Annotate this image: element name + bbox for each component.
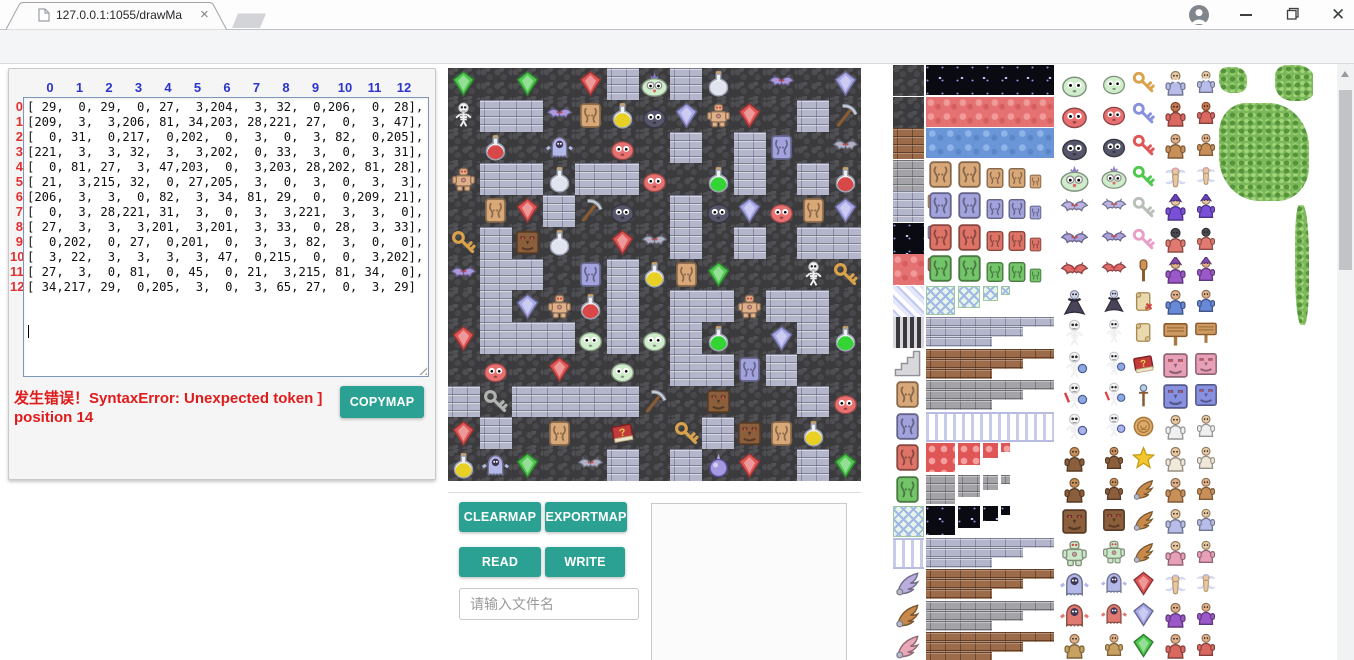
tile-map-canvas[interactable]: ? xyxy=(448,68,861,481)
map-tile-81[interactable] xyxy=(543,417,575,449)
map-tile-28[interactable] xyxy=(670,100,702,132)
map-tile-209[interactable] xyxy=(797,259,829,291)
tileset-monster-ghost[interactable] xyxy=(1101,601,1129,629)
map-tile-31[interactable] xyxy=(829,163,861,195)
map-tile-0[interactable] xyxy=(734,322,766,354)
map-tile-0[interactable] xyxy=(766,100,798,132)
map-tile-81[interactable] xyxy=(797,195,829,227)
tileset-item-key[interactable] xyxy=(1131,133,1157,159)
tileset-char-person[interactable] xyxy=(1161,257,1191,287)
tileset-char-person[interactable] xyxy=(1193,194,1220,221)
map-tile-29[interactable] xyxy=(829,449,861,481)
tileset-char-person[interactable] xyxy=(1193,476,1220,503)
tileset-tree[interactable] xyxy=(1275,65,1313,101)
map-tile-3[interactable] xyxy=(575,386,607,418)
tileset-char-person[interactable] xyxy=(1193,288,1220,315)
tileset-item-medal[interactable] xyxy=(1131,414,1157,440)
tileset-steps-row[interactable] xyxy=(926,632,1056,660)
map-tile-3[interactable] xyxy=(702,290,734,322)
map-tile-3[interactable] xyxy=(480,322,512,354)
map-tile-3[interactable] xyxy=(766,354,798,386)
map-tile-221[interactable] xyxy=(734,290,766,322)
map-tile-202[interactable] xyxy=(607,132,639,164)
map-tile-204[interactable] xyxy=(639,68,671,100)
map-tile-3[interactable] xyxy=(797,322,829,354)
map-tile-3[interactable] xyxy=(607,163,639,195)
map-tile-215[interactable] xyxy=(734,417,766,449)
map-tile-82[interactable] xyxy=(766,132,798,164)
map-tile-3[interactable] xyxy=(512,386,544,418)
map-tile-201[interactable] xyxy=(575,322,607,354)
tileset-wing[interactable] xyxy=(893,569,924,600)
map-tile-47[interactable] xyxy=(829,100,861,132)
tileset-monster-bat[interactable] xyxy=(1060,226,1090,256)
scrollbar-thumb[interactable] xyxy=(1339,90,1352,270)
map-tile-3[interactable] xyxy=(575,163,607,195)
tileset-monster-slime[interactable] xyxy=(1101,132,1129,160)
map-tile-0[interactable] xyxy=(829,417,861,449)
tileset-wing[interactable] xyxy=(893,601,924,632)
tileset-char-fairy[interactable] xyxy=(1193,570,1220,597)
map-tile-0[interactable] xyxy=(639,417,671,449)
tileset-texture-bar[interactable] xyxy=(926,128,1054,158)
map-tile-0[interactable] xyxy=(448,195,480,227)
tileset-item-gem[interactable] xyxy=(1131,602,1157,628)
map-tile-47[interactable] xyxy=(575,195,607,227)
map-tile-0[interactable] xyxy=(448,354,480,386)
map-tile-201[interactable] xyxy=(607,354,639,386)
map-tile-3[interactable] xyxy=(670,290,702,322)
map-tile-3[interactable] xyxy=(670,322,702,354)
tileset-door-row[interactable] xyxy=(926,191,1056,222)
map-tile-0[interactable] xyxy=(734,386,766,418)
map-tile-29[interactable] xyxy=(702,259,734,291)
map-tile-221[interactable] xyxy=(702,100,734,132)
tileset-palette[interactable]: ? xyxy=(893,65,1313,660)
map-tile-27[interactable] xyxy=(734,449,766,481)
map-tile-29[interactable] xyxy=(512,449,544,481)
map-tile-27[interactable] xyxy=(607,227,639,259)
map-tile-0[interactable] xyxy=(766,259,798,291)
tileset-item-book[interactable]: ? xyxy=(1131,352,1157,378)
map-tile-3[interactable] xyxy=(480,100,512,132)
map-tile-202[interactable] xyxy=(766,195,798,227)
map-tile-3[interactable] xyxy=(670,449,702,481)
map-tile-28[interactable] xyxy=(766,322,798,354)
map-tile-3[interactable] xyxy=(670,68,702,100)
tileset-char-faceblock[interactable] xyxy=(1161,351,1191,381)
tileset-monster-slime[interactable] xyxy=(1060,132,1090,162)
read-button[interactable]: READ xyxy=(459,547,541,577)
map-tile-34[interactable] xyxy=(797,417,829,449)
tileset-char-sign[interactable] xyxy=(1193,319,1220,346)
map-tile-3[interactable] xyxy=(607,322,639,354)
map-tile-0[interactable] xyxy=(670,386,702,418)
map-tile-0[interactable] xyxy=(512,132,544,164)
map-tile-3[interactable] xyxy=(512,163,544,195)
map-tile-215[interactable] xyxy=(702,386,734,418)
tileset-terrain-rock-gray[interactable] xyxy=(893,160,924,191)
tileset-tree[interactable] xyxy=(1295,205,1309,325)
map-tile-31[interactable] xyxy=(480,132,512,164)
map-tile-3[interactable] xyxy=(734,163,766,195)
map-tile-3[interactable] xyxy=(480,290,512,322)
map-tile-0[interactable] xyxy=(702,227,734,259)
tileset-monster-vampire[interactable] xyxy=(1101,288,1129,316)
tileset-char-fairy[interactable] xyxy=(1161,570,1191,600)
tileset-monster-skeleton[interactable] xyxy=(1101,351,1129,379)
tileset-monster-faceblock[interactable] xyxy=(1101,507,1129,535)
tileset-door-row[interactable] xyxy=(926,223,1056,254)
map-tile-33[interactable] xyxy=(702,163,734,195)
map-tile-32[interactable] xyxy=(543,227,575,259)
tileset-terrain-starfield[interactable] xyxy=(893,223,924,254)
tileset-monster-skeleton[interactable] xyxy=(1060,413,1090,443)
tileset-monster-bat[interactable] xyxy=(1060,194,1090,224)
tileset-char-faceblock[interactable] xyxy=(1161,382,1191,412)
tileset-monster-slime[interactable] xyxy=(1101,100,1129,128)
tileset-tree[interactable] xyxy=(1219,103,1309,201)
tileset-monster-skeleton[interactable] xyxy=(1101,413,1129,441)
map-tile-27[interactable] xyxy=(575,68,607,100)
tileset-steps-row[interactable] xyxy=(926,601,1056,632)
map-tile-203[interactable] xyxy=(607,195,639,227)
tileset-shrink-row[interactable] xyxy=(926,506,1056,537)
tileset-char-person[interactable] xyxy=(1161,507,1191,537)
copymap-button[interactable]: COPYMAP xyxy=(340,386,424,418)
map-tile-3[interactable] xyxy=(797,290,829,322)
tileset-monster-bat[interactable] xyxy=(1060,257,1090,287)
tileset-monster-person[interactable] xyxy=(1060,632,1090,660)
map-tile-3[interactable] xyxy=(766,290,798,322)
tileset-monster-ghost[interactable] xyxy=(1101,570,1129,598)
tileset-char-person[interactable] xyxy=(1193,132,1220,159)
map-tile-0[interactable] xyxy=(797,354,829,386)
map-tile-0[interactable] xyxy=(639,290,671,322)
map-tile-3[interactable] xyxy=(543,195,575,227)
map-tile-3[interactable] xyxy=(702,354,734,386)
tileset-monster-skeleton[interactable] xyxy=(1101,319,1129,347)
map-tile-0[interactable] xyxy=(575,132,607,164)
tileset-item-key[interactable] xyxy=(1131,195,1157,221)
map-tile-47[interactable] xyxy=(639,386,671,418)
tileset-char-person[interactable] xyxy=(1193,601,1220,628)
map-tile-34[interactable] xyxy=(639,259,671,291)
map-tile-28[interactable] xyxy=(512,290,544,322)
map-tile-0[interactable] xyxy=(766,386,798,418)
map-tile-0[interactable] xyxy=(639,354,671,386)
tileset-monster-person[interactable] xyxy=(1101,476,1129,504)
map-tile-3[interactable] xyxy=(670,195,702,227)
tileset-texture-bar[interactable] xyxy=(926,65,1054,95)
tileset-char-person[interactable] xyxy=(1193,257,1220,284)
tileset-terrain-cobble-dark[interactable] xyxy=(893,65,924,96)
map-tile-3[interactable] xyxy=(480,163,512,195)
map-tile-3[interactable] xyxy=(607,259,639,291)
map-tile-3[interactable] xyxy=(670,354,702,386)
map-tile-3[interactable] xyxy=(702,417,734,449)
map-tile-205[interactable] xyxy=(829,132,861,164)
map-tile-3[interactable] xyxy=(480,227,512,259)
tileset-steps-row[interactable] xyxy=(926,538,1056,569)
window-close-button[interactable]: ✕ xyxy=(1331,6,1345,23)
tileset-char-person[interactable] xyxy=(1193,69,1220,96)
map-tile-3[interactable] xyxy=(512,100,544,132)
tileset-monster-faceblock[interactable] xyxy=(1060,507,1090,537)
tileset-char-person[interactable] xyxy=(1161,476,1191,506)
map-tile-0[interactable] xyxy=(797,132,829,164)
tileset-char-person[interactable] xyxy=(1161,194,1191,224)
map-tile-81[interactable] xyxy=(480,195,512,227)
tileset-door-row[interactable] xyxy=(926,160,1056,191)
map-tile-3[interactable] xyxy=(607,386,639,418)
map-tile-221[interactable] xyxy=(543,290,575,322)
map-tile-206[interactable] xyxy=(448,259,480,291)
tileset-steps-row[interactable] xyxy=(926,317,1056,348)
tileset-monster-bigslime[interactable] xyxy=(1060,163,1090,193)
map-tile-3[interactable] xyxy=(607,68,639,100)
map-tile-27[interactable] xyxy=(448,322,480,354)
map-tile-3[interactable] xyxy=(670,227,702,259)
map-tile-0[interactable] xyxy=(575,417,607,449)
map-tile-31[interactable] xyxy=(575,290,607,322)
tileset-terrain-cobble-dark[interactable] xyxy=(893,97,924,128)
tileset-monster-person[interactable] xyxy=(1060,445,1090,475)
map-tile-0[interactable] xyxy=(829,290,861,322)
tileset-monster-skeleton[interactable] xyxy=(1060,382,1090,412)
map-tile-81[interactable] xyxy=(575,100,607,132)
map-tile-0[interactable] xyxy=(543,449,575,481)
tileset-monster-skeleton[interactable] xyxy=(1101,382,1129,410)
tileset-shrink-row[interactable] xyxy=(926,286,1056,317)
tileset-char-person[interactable] xyxy=(1161,632,1191,660)
tileset-char-fairy[interactable] xyxy=(1193,163,1220,190)
map-tile-28[interactable] xyxy=(829,68,861,100)
tileset-char-faceblock[interactable] xyxy=(1193,382,1220,409)
tileset-door[interactable] xyxy=(893,475,924,506)
tileset-terrain-brick-brown[interactable] xyxy=(893,128,924,159)
map-tile-203[interactable] xyxy=(639,100,671,132)
map-tile-28[interactable] xyxy=(829,195,861,227)
map-tile-3[interactable] xyxy=(797,227,829,259)
map-tile-221[interactable] xyxy=(448,163,480,195)
map-tile-3[interactable] xyxy=(543,322,575,354)
map-tile-3[interactable] xyxy=(512,259,544,291)
tileset-item-key[interactable] xyxy=(1131,70,1157,96)
tileset-door[interactable] xyxy=(893,380,924,411)
map-tile-209[interactable] xyxy=(448,100,480,132)
tileset-char-person[interactable] xyxy=(1193,539,1220,566)
tileset-char-faceblock[interactable] xyxy=(1193,351,1220,378)
map-tile-0[interactable] xyxy=(734,259,766,291)
tileset-monster-skeleton[interactable] xyxy=(1060,319,1090,349)
tileset-tree[interactable] xyxy=(1219,67,1247,93)
tileset-char-person[interactable] xyxy=(1161,226,1191,256)
scrollbar-up-arrow-icon[interactable] xyxy=(1341,71,1349,77)
tileset-item-wing[interactable] xyxy=(1131,540,1157,566)
tileset-monster-person[interactable] xyxy=(1101,445,1129,473)
tileset-monster-bat[interactable] xyxy=(1101,257,1129,285)
map-tile-0[interactable] xyxy=(543,68,575,100)
tileset-char-person[interactable] xyxy=(1193,632,1220,659)
tileset-door[interactable] xyxy=(893,443,924,474)
map-tile-3[interactable] xyxy=(543,386,575,418)
map-tile-215[interactable] xyxy=(512,227,544,259)
tileset-monster-golem[interactable] xyxy=(1060,539,1090,569)
map-tile-21[interactable] xyxy=(670,417,702,449)
textarea-resize-grip[interactable] xyxy=(417,365,427,375)
map-tile-82[interactable] xyxy=(575,259,607,291)
tileset-item-wing[interactable] xyxy=(1131,508,1157,534)
tileset-terrain-cobble-blue[interactable] xyxy=(893,191,924,222)
tileset-terrain-terrain-red[interactable] xyxy=(893,254,924,285)
map-tile-28[interactable] xyxy=(734,195,766,227)
map-tile-3[interactable] xyxy=(734,227,766,259)
tileset-monster-golem[interactable] xyxy=(1101,539,1129,567)
tileset-char-person[interactable] xyxy=(1193,226,1220,253)
map-tile-0[interactable] xyxy=(829,354,861,386)
map-tile-3[interactable] xyxy=(797,386,829,418)
tileset-char-person[interactable] xyxy=(1161,601,1191,631)
map-tile-0[interactable] xyxy=(766,449,798,481)
map-tile-33[interactable] xyxy=(702,322,734,354)
map-tile-0[interactable] xyxy=(670,163,702,195)
map-tile-206[interactable] xyxy=(543,100,575,132)
exportmap-button[interactable]: EXPORTMAP xyxy=(545,502,627,532)
map-tile-0[interactable] xyxy=(480,68,512,100)
tileset-monster-ghost[interactable] xyxy=(1060,570,1090,600)
map-tile-32[interactable] xyxy=(702,68,734,100)
tileset-steps-row[interactable] xyxy=(926,569,1056,600)
tileset-char-person[interactable] xyxy=(1193,100,1220,127)
tileset-item-wing[interactable] xyxy=(1131,477,1157,503)
map-tile-0[interactable] xyxy=(448,132,480,164)
map-tile-33[interactable] xyxy=(829,322,861,354)
tileset-item-key[interactable] xyxy=(1131,164,1157,190)
map-tile-81[interactable] xyxy=(766,417,798,449)
tileset-monster-slime[interactable] xyxy=(1060,69,1090,99)
tileset-wing[interactable] xyxy=(893,632,924,660)
write-button[interactable]: WRITE xyxy=(545,547,625,577)
tileset-item-club[interactable] xyxy=(1131,258,1157,284)
tileset-terrain-lattice[interactable] xyxy=(893,506,924,537)
map-tile-34[interactable] xyxy=(607,100,639,132)
map-tile-27[interactable] xyxy=(734,100,766,132)
map-tile-0[interactable] xyxy=(575,354,607,386)
tileset-monster-person[interactable] xyxy=(1060,476,1090,506)
tileset-char-person[interactable] xyxy=(1161,132,1191,162)
tileset-door[interactable] xyxy=(893,412,924,443)
map-tile-3[interactable] xyxy=(734,132,766,164)
tileset-char-person[interactable] xyxy=(1161,445,1191,475)
tileset-char-person[interactable] xyxy=(1193,507,1220,534)
tileset-monster-bat[interactable] xyxy=(1101,194,1129,222)
map-tile-0[interactable] xyxy=(797,68,829,100)
tab-close-icon[interactable]: × xyxy=(200,6,209,23)
map-tile-202[interactable] xyxy=(829,386,861,418)
tileset-shrink-row[interactable] xyxy=(926,475,1056,506)
tileset-item-gem[interactable] xyxy=(1131,633,1157,659)
map-tile-217[interactable] xyxy=(480,449,512,481)
map-tile-3[interactable] xyxy=(670,132,702,164)
tileset-terrain-stripe[interactable] xyxy=(893,286,924,317)
tileset-monster-ghost[interactable] xyxy=(1060,601,1090,631)
tileset-char-person[interactable] xyxy=(1161,539,1191,569)
map-tile-27[interactable] xyxy=(448,417,480,449)
tileset-shrink-row[interactable] xyxy=(926,443,1056,474)
tileset-item-gem[interactable] xyxy=(1131,571,1157,597)
map-tile-65[interactable] xyxy=(702,449,734,481)
tileset-item-scroll[interactable] xyxy=(1131,289,1157,315)
filename-input[interactable] xyxy=(459,588,639,620)
tileset-char-fairy[interactable] xyxy=(1161,163,1191,193)
map-tile-82[interactable] xyxy=(734,354,766,386)
map-tile-3[interactable] xyxy=(797,163,829,195)
tileset-monster-bat[interactable] xyxy=(1101,226,1129,254)
map-tile-3[interactable] xyxy=(829,227,861,259)
map-tile-27[interactable] xyxy=(512,195,544,227)
map-tile-0[interactable] xyxy=(543,259,575,291)
map-tile-0[interactable] xyxy=(734,68,766,100)
tileset-monster-skeleton[interactable] xyxy=(1060,351,1090,381)
map-tile-3[interactable] xyxy=(797,449,829,481)
map-tile-45[interactable]: ? xyxy=(607,417,639,449)
map-tile-0[interactable] xyxy=(766,163,798,195)
map-tile-21[interactable] xyxy=(829,259,861,291)
map-tile-3[interactable] xyxy=(448,386,480,418)
map-tile-202[interactable] xyxy=(480,354,512,386)
tileset-terrain-columns[interactable] xyxy=(893,538,924,569)
tileset-monster-person[interactable] xyxy=(1101,632,1129,660)
map-tile-0[interactable] xyxy=(702,132,734,164)
map-tile-0[interactable] xyxy=(512,354,544,386)
tileset-steps-row[interactable] xyxy=(926,349,1056,380)
map-tile-203[interactable] xyxy=(702,195,734,227)
tileset-monster-slime[interactable] xyxy=(1101,69,1129,97)
map-tile-32[interactable] xyxy=(543,163,575,195)
map-tile-34[interactable] xyxy=(448,449,480,481)
tileset-monster-bigslime[interactable] xyxy=(1101,163,1129,191)
window-restore-button[interactable] xyxy=(1286,7,1300,26)
map-tile-21[interactable] xyxy=(448,227,480,259)
map-tile-0[interactable] xyxy=(575,227,607,259)
tileset-char-person[interactable] xyxy=(1193,445,1220,472)
map-tile-0[interactable] xyxy=(766,227,798,259)
map-tile-29[interactable] xyxy=(512,68,544,100)
tileset-char-person[interactable] xyxy=(1161,69,1191,99)
tileset-texture-bar[interactable] xyxy=(926,97,1054,127)
tileset-monster-slime[interactable] xyxy=(1060,100,1090,130)
tileset-char-person[interactable] xyxy=(1193,413,1220,440)
tileset-monster-vampire[interactable] xyxy=(1060,288,1090,318)
clearmap-button[interactable]: CLEARMAP xyxy=(459,502,541,532)
map-tile-3[interactable] xyxy=(480,417,512,449)
tileset-columns-row[interactable] xyxy=(926,412,1054,442)
tileset-char-sign[interactable] xyxy=(1161,319,1191,349)
tileset-item-key[interactable] xyxy=(1131,101,1157,127)
window-minimize-button[interactable] xyxy=(1240,14,1252,16)
tileset-char-person[interactable] xyxy=(1161,100,1191,130)
page-scrollbar[interactable] xyxy=(1337,64,1354,660)
tileset-char-person[interactable] xyxy=(1161,413,1191,443)
map-tile-0[interactable] xyxy=(639,449,671,481)
tileset-steps-row[interactable] xyxy=(926,380,1056,411)
tileset-item-staff[interactable] xyxy=(1131,383,1157,409)
map-tile-22[interactable] xyxy=(480,386,512,418)
profile-icon[interactable] xyxy=(1188,4,1210,31)
map-tile-3[interactable] xyxy=(607,449,639,481)
tileset-char-person[interactable] xyxy=(1161,288,1191,318)
